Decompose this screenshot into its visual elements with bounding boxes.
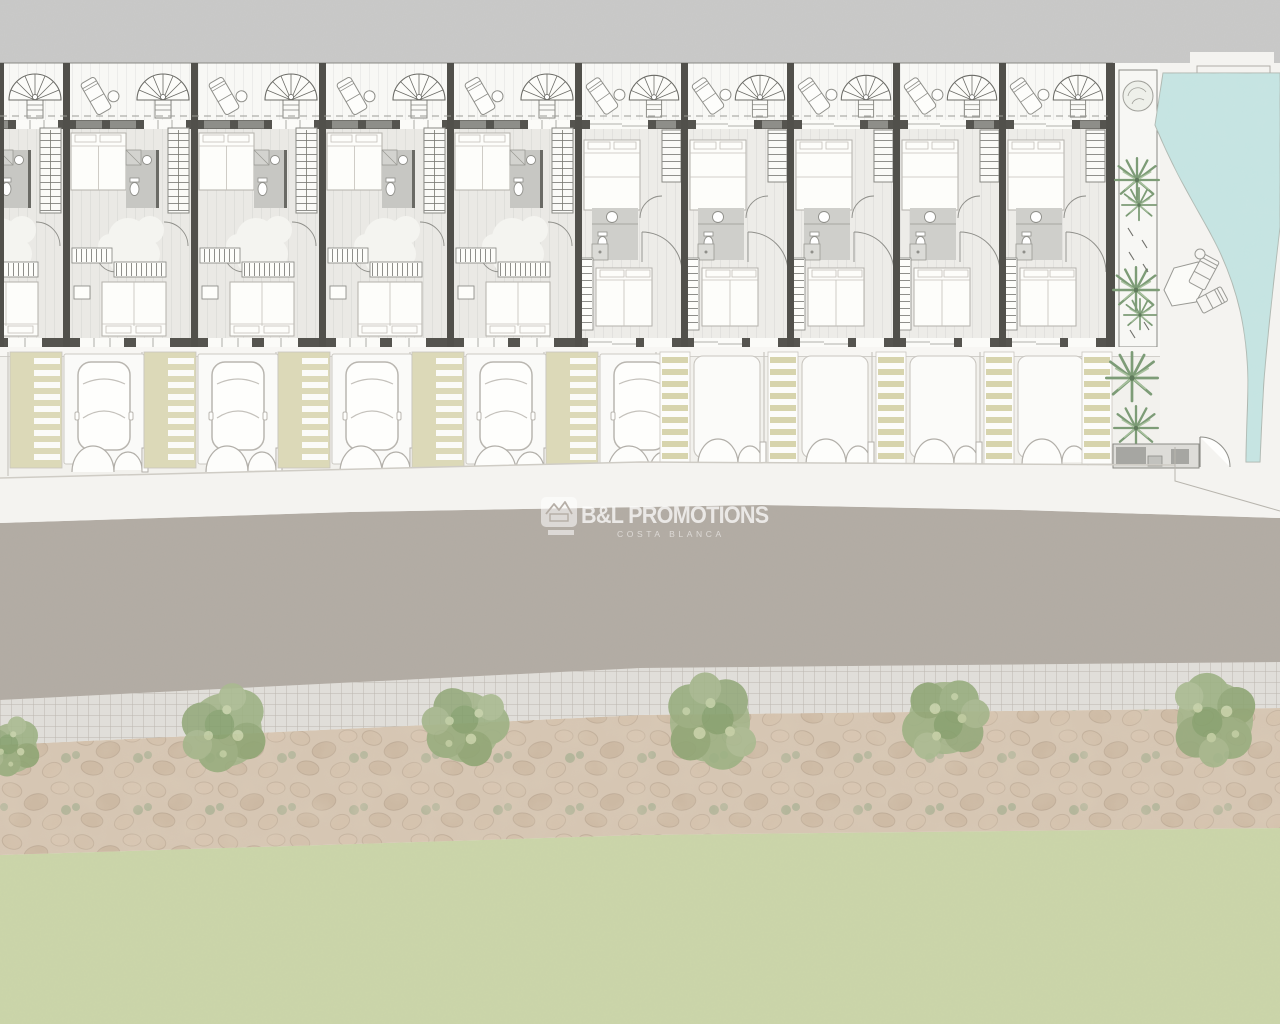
empty-driveway-4	[1018, 356, 1090, 464]
empty-driveway-1	[694, 356, 766, 464]
lawn-band	[0, 828, 1280, 1024]
parked-car-3	[332, 354, 416, 472]
site-plan-canvas: B&L PROMOTIONS COSTA BLANCA	[0, 0, 1280, 1024]
townhouse-block	[0, 63, 1160, 348]
empty-driveway-2	[802, 356, 874, 464]
driveway-band	[0, 347, 1160, 476]
parked-car-2	[198, 354, 282, 472]
parked-car-4	[466, 354, 550, 472]
garden-strip	[1113, 63, 1160, 352]
top-road-band	[0, 0, 1280, 63]
parked-car-1	[64, 354, 148, 472]
swimming-pool-area	[1155, 63, 1280, 470]
round-bush-icon	[1123, 81, 1153, 111]
brand-text: B&L PROMOTIONS	[581, 501, 769, 528]
empty-driveway-3	[910, 356, 982, 464]
site-plan-root: B&L PROMOTIONS COSTA BLANCA	[0, 0, 1280, 1024]
tagline-text: COSTA BLANCA	[617, 529, 725, 539]
